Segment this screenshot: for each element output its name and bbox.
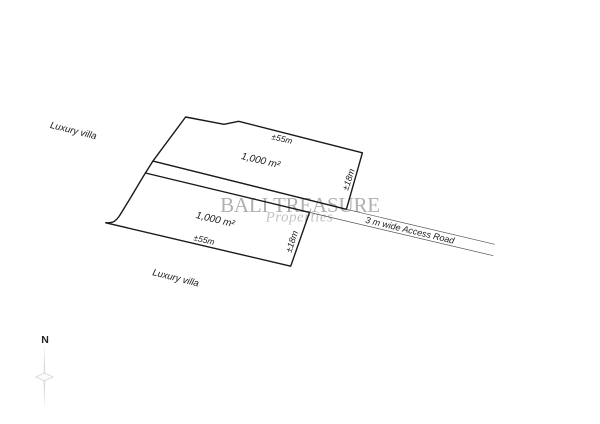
svg-text:±55m: ±55m — [271, 131, 294, 146]
svg-text:1,000 m²: 1,000 m² — [240, 151, 282, 171]
svg-text:3 m wide Access Road: 3 m wide Access Road — [364, 215, 456, 246]
svg-text:Luxury villa: Luxury villa — [151, 267, 200, 289]
svg-text:Luxury villa: Luxury villa — [49, 120, 98, 142]
svg-text:Properties: Properties — [265, 210, 334, 226]
svg-text:±55m: ±55m — [193, 232, 216, 247]
svg-text:±18m: ±18m — [284, 229, 301, 254]
svg-text:N: N — [41, 334, 49, 346]
